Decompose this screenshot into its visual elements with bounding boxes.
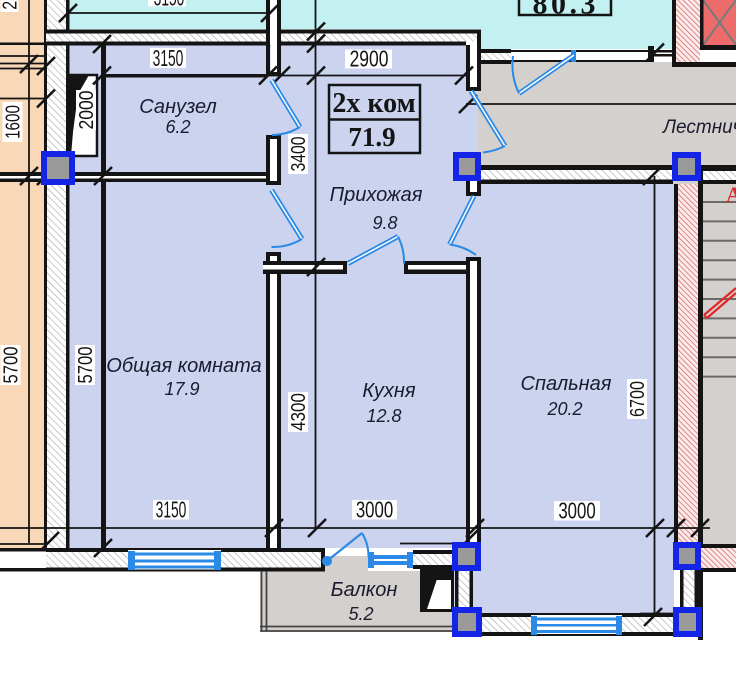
svg-text:9.8: 9.8 (372, 213, 397, 233)
svg-text:80.3: 80.3 (533, 0, 596, 21)
svg-text:71.9: 71.9 (348, 122, 395, 152)
svg-text:17.9: 17.9 (164, 379, 199, 399)
svg-text:Лестничная: Лестничная (661, 117, 736, 138)
svg-text:3000: 3000 (558, 499, 595, 524)
svg-text:2х ком: 2х ком (332, 88, 415, 119)
svg-text:6700: 6700 (626, 381, 648, 417)
svg-text:3000: 3000 (356, 498, 393, 523)
svg-text:5700: 5700 (74, 347, 97, 384)
svg-text:12.8: 12.8 (366, 406, 401, 426)
svg-text:Спальная: Спальная (521, 373, 612, 395)
svg-text:3400: 3400 (287, 136, 309, 171)
svg-text:2000: 2000 (75, 90, 97, 129)
svg-text:Прихожая: Прихожая (330, 184, 423, 206)
svg-text:Кухня: Кухня (362, 380, 416, 402)
svg-text:6.2: 6.2 (165, 117, 190, 137)
svg-text:3150: 3150 (156, 498, 187, 523)
svg-text:А: А (726, 182, 736, 207)
svg-text:Санузел: Санузел (139, 96, 217, 118)
svg-text:20.2: 20.2 (546, 399, 582, 419)
svg-text:3150: 3150 (154, 0, 185, 12)
svg-text:Балкон: Балкон (331, 579, 398, 601)
svg-text:5700: 5700 (0, 347, 22, 384)
svg-text:1600: 1600 (1, 105, 24, 139)
svg-text:2900: 2900 (350, 47, 389, 72)
svg-text:4300: 4300 (287, 393, 310, 431)
svg-text:5.2: 5.2 (348, 604, 373, 624)
svg-text:3150: 3150 (153, 46, 184, 71)
svg-text:2300: 2300 (0, 0, 21, 10)
svg-text:Общая комната: Общая комната (106, 355, 261, 377)
